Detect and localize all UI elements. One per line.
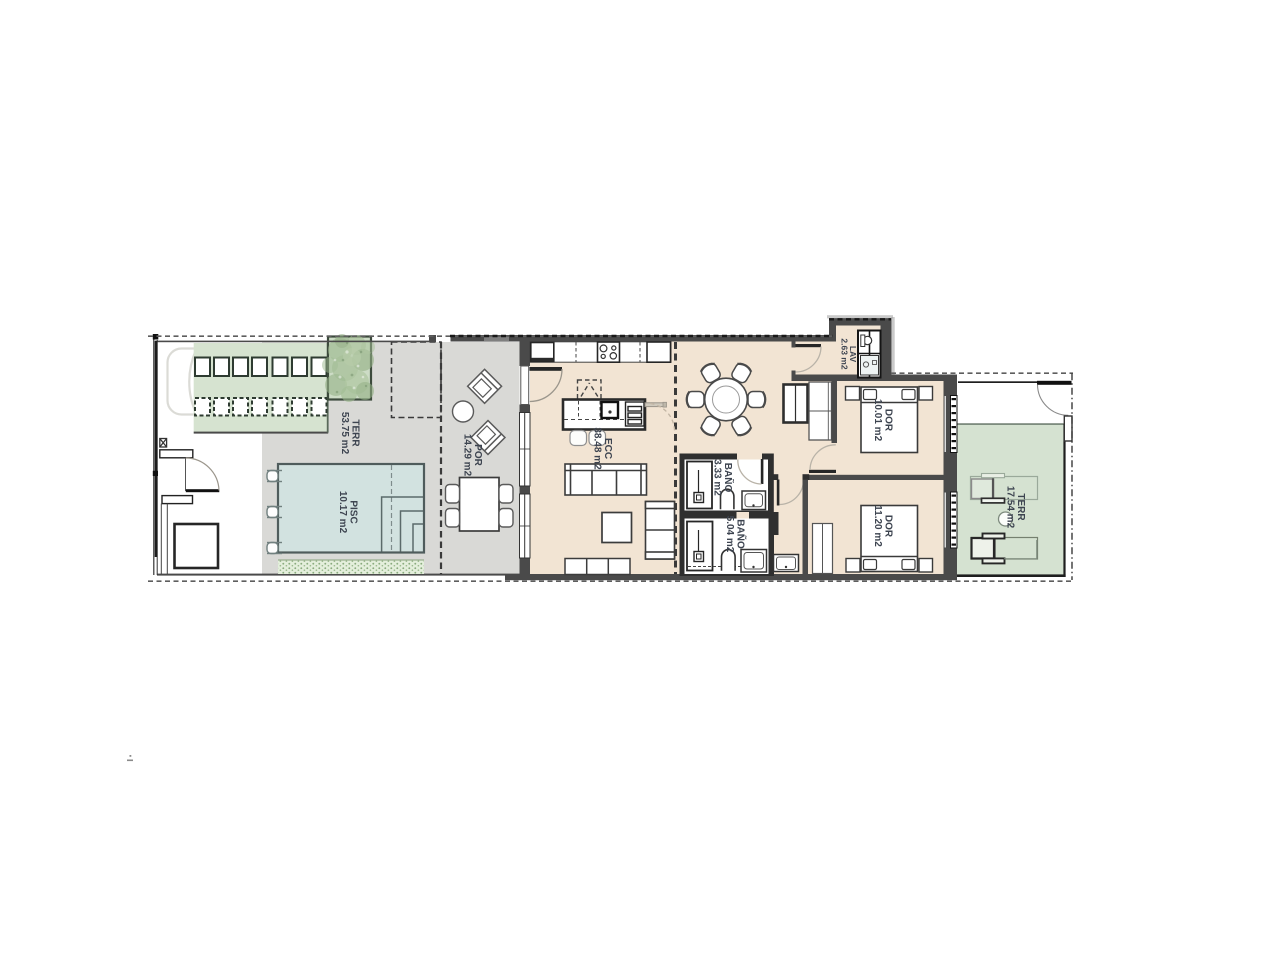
svg-text:BAÑO3.33 m2: BAÑO3.33 m2 xyxy=(712,459,736,496)
svg-text:BAÑO5.04 m2: BAÑO5.04 m2 xyxy=(724,516,748,553)
